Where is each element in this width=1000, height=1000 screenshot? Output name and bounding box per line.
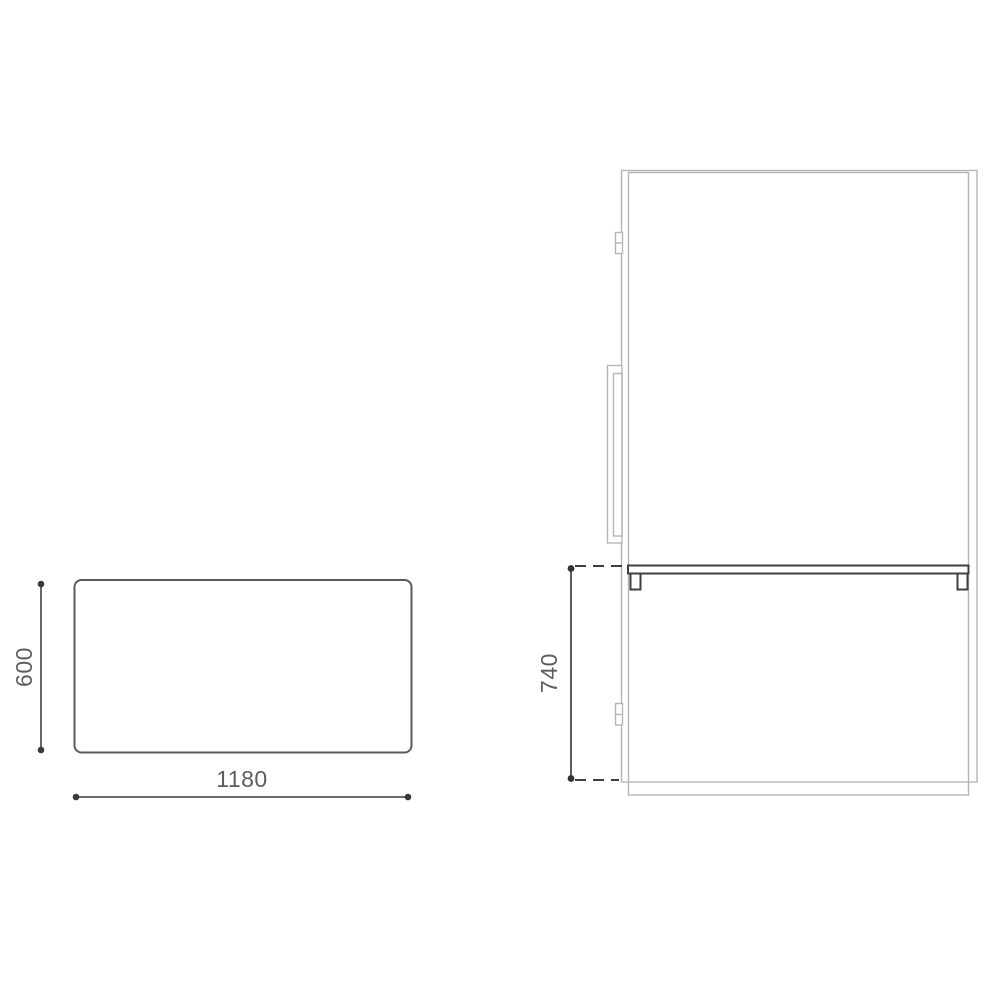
technical-drawing: 600 1180 [0,0,1000,1000]
height-dimension-label: 740 [536,653,562,693]
cabinet-outer-panel [622,171,978,783]
door-handle [608,366,623,544]
tabletop-outline [75,580,412,753]
dimension-endpoint-dot [38,747,45,754]
desk-bracket-left [631,574,641,590]
dimension-endpoint-dot [38,581,45,588]
hinge-bottom [616,704,623,726]
hinge-top [616,233,623,254]
desk-bracket-right [958,574,968,590]
depth-dimension-label: 600 [11,647,37,687]
side-view-group: 740 [536,171,977,796]
dimension-endpoint-dot [568,565,575,572]
dimension-endpoint-dot [568,775,575,782]
dimension-endpoint-dot [405,794,412,801]
desk-surface-bar [628,566,969,574]
dimension-endpoint-dot [73,794,80,801]
width-dimension-label: 1180 [216,766,267,792]
top-view-group: 600 1180 [11,580,411,800]
cabinet-door-panel [629,173,969,796]
door-handle-outer [608,366,623,544]
drawing-canvas: 600 1180 [0,0,1000,1000]
